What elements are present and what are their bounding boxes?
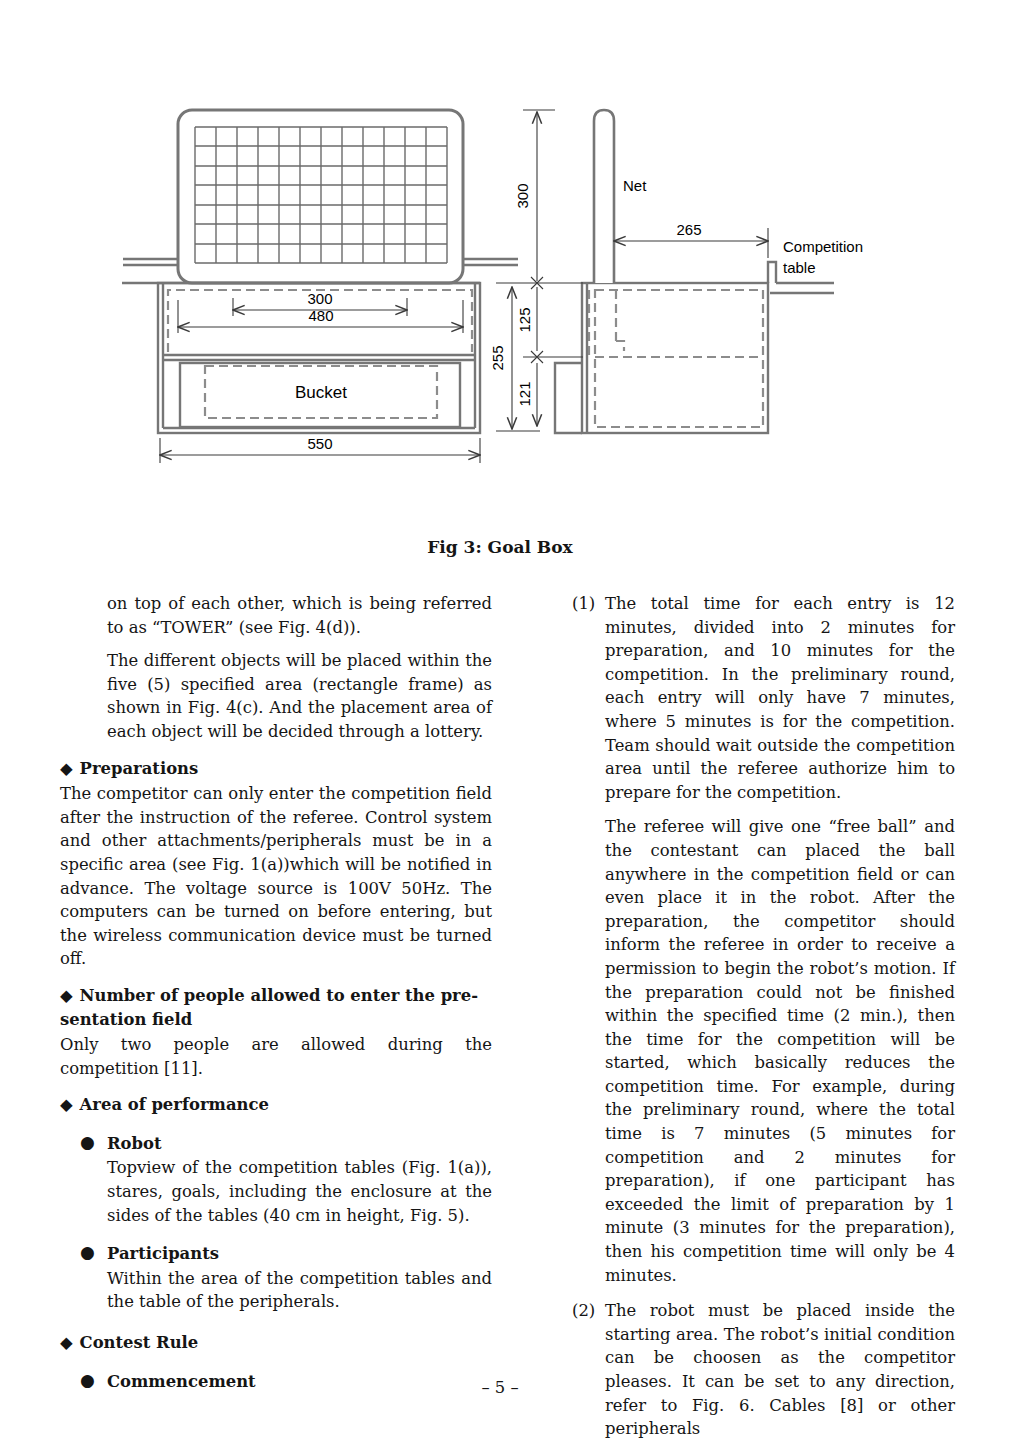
participants-heading: Participants [107, 1242, 492, 1266]
numbered-item-2: (2) The robot must be placed inside the … [572, 1299, 955, 1441]
robot-body: Topview of the competition tables (Fig. … [107, 1156, 492, 1227]
bullet-marker: ● [80, 1131, 95, 1155]
intro-paragraph-1: on top of each other, which is being ref… [107, 592, 492, 639]
item-1-body: The total time for each entry is 12 minu… [605, 592, 955, 1287]
dim-front-frame-width-label: 480 [308, 307, 333, 324]
dim-box-total-height-label: 255 [489, 345, 506, 370]
numbered-item-1: (1) The total time for each entry is 12 … [572, 592, 955, 1287]
item-2-number: (2) [572, 1299, 605, 1441]
left-column: on top of each other, which is being ref… [60, 592, 492, 1394]
diamond-marker: ◆ [60, 1333, 80, 1352]
page-number: – 5 – [0, 1378, 1000, 1397]
people-body: Only two people are allowed during the c… [60, 1033, 492, 1080]
dim-side-depth-label: 265 [676, 221, 701, 238]
area-heading: ◆Area of performance [60, 1093, 492, 1117]
item-2-paragraph: The robot must be placed inside the star… [605, 1299, 955, 1441]
competition-table-label-line2: table [783, 259, 816, 276]
bullet-marker: ● [80, 1241, 95, 1265]
diamond-marker: ◆ [60, 1095, 80, 1114]
dim-box-lower-height-label: 121 [516, 381, 533, 406]
people-heading-line2: sentation field [60, 1010, 192, 1029]
item-1-number: (1) [572, 592, 605, 1287]
figure-caption: Fig 3: Goal Box [0, 537, 1000, 557]
right-column: (1) The total time for each entry is 12 … [572, 592, 955, 1447]
document-page: 300 480 550 300 255 125 121 265 Net Buck… [0, 0, 1024, 1447]
diamond-marker: ◆ [60, 986, 80, 1005]
diamond-marker: ◆ [60, 759, 80, 778]
preparations-heading-label: Preparations [80, 759, 199, 778]
contest-rule-heading-label: Contest Rule [80, 1333, 199, 1352]
net-label: Net [623, 177, 647, 194]
robot-heading: Robot [107, 1132, 492, 1156]
dim-net-height-label: 300 [514, 183, 531, 208]
dim-box-upper-height-label: 125 [516, 307, 533, 332]
net-grid [195, 127, 447, 263]
participants-section: ● Participants Within the area of the co… [60, 1242, 492, 1314]
item-2-body: The robot must be placed inside the star… [605, 1299, 955, 1441]
robot-section: ● Robot Topview of the competition table… [60, 1132, 492, 1227]
goal-box-figure: 300 480 550 300 255 125 121 265 Net Buck… [0, 0, 1024, 500]
intro-paragraph-2: The different objects will be placed wit… [107, 649, 492, 743]
people-heading-line1: Number of people allowed to enter the pr… [80, 986, 478, 1005]
competition-table-label-line1: Competition [783, 238, 863, 255]
dim-front-inner-width-label: 300 [307, 290, 332, 307]
contest-rule-heading: ◆Contest Rule [60, 1331, 492, 1355]
bucket-label: Bucket [295, 383, 347, 402]
item-1-paragraph-2: The referee will give one “free ball” an… [605, 815, 955, 1287]
preparations-body: The competitor can only enter the compet… [60, 782, 492, 971]
people-heading: ◆Number of people allowed to enter the p… [60, 984, 492, 1031]
dim-front-total-width-label: 550 [307, 435, 332, 452]
preparations-heading: ◆Preparations [60, 757, 492, 781]
side-dashed-areas [589, 290, 763, 427]
area-heading-label: Area of performance [80, 1095, 269, 1114]
intro-list-continuation: on top of each other, which is being ref… [60, 592, 492, 744]
item-1-paragraph-1: The total time for each entry is 12 minu… [605, 592, 955, 804]
participants-body: Within the area of the competition table… [107, 1267, 492, 1314]
